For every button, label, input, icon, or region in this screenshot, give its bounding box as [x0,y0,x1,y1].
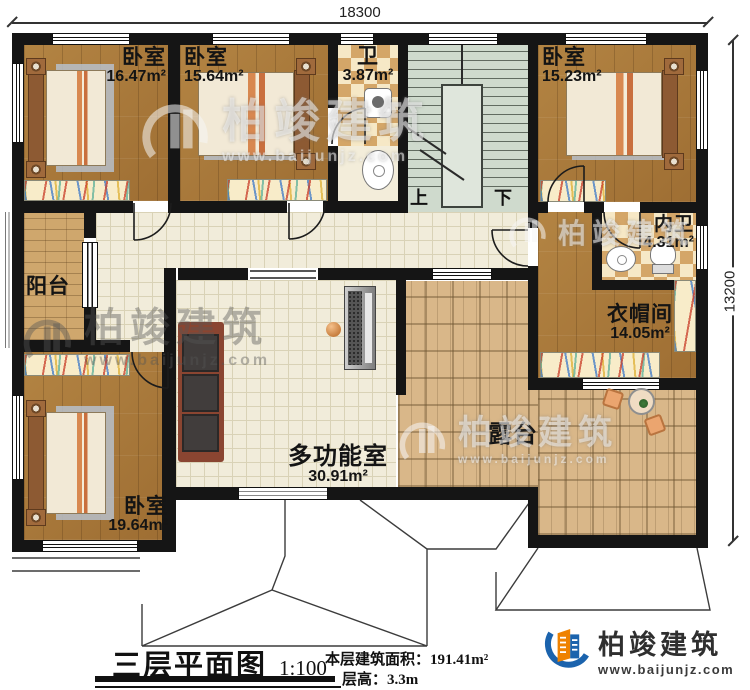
window [696,225,708,270]
wardrobe [24,180,130,201]
wall [538,202,548,213]
stairs-up-label: 上 [410,184,428,210]
terrace-sliding-door[interactable] [432,268,492,280]
wall [12,201,133,213]
room-name: 卧室 [62,47,166,69]
wall [12,540,42,552]
corridor-floor [96,212,528,268]
window [582,378,660,390]
room-label-bedroom-top-middle: 卧室 15.64m² [184,47,294,86]
sofa [178,322,224,462]
floor-height-label: 层高： [342,672,387,688]
title-underline-thick [95,676,335,682]
room-label-bath: 卫 3.87m² [334,46,402,85]
floor-height-value: 3.3m [387,672,418,688]
wall [396,268,406,395]
room-label-bedroom-top-right: 卧室 15.23m² [542,47,652,86]
stairs-down-label: 下 [494,184,512,210]
room-label-bedroom-bottom-left: 卧室 19.64m² [92,496,168,535]
window [52,33,130,45]
room-name: 卫 [334,46,402,68]
brand-name: 柏竣建筑 [598,623,734,662]
room-name: 卧室 [542,47,652,69]
wardrobe [24,354,130,376]
brand-logo-block: 柏竣建筑 www.baijunjz.com [536,620,734,680]
room-area: 19.64m² [92,518,168,535]
title-underline-thin [95,686,341,688]
dimension-height: 13200 [721,268,738,316]
floor-area-line: 本层建筑面积：191.41m² [325,648,488,669]
room-floor-terrace-right [538,390,696,535]
room-label-balcony: 阳台 [26,276,70,298]
wall [318,268,432,280]
wall [323,201,403,213]
corridor-opening-rail [250,270,316,279]
wall [592,212,602,280]
window [696,70,708,150]
wall [84,212,96,238]
wall [178,268,248,280]
dimension-width: 18300 [336,4,384,21]
window [212,33,290,45]
wall [138,540,168,552]
floor-area-label: 本层建筑面积： [325,652,430,668]
sink [362,150,394,190]
window [565,33,647,45]
room-area: 4.31m² [608,235,694,252]
room-area: 16.47m² [62,69,166,86]
floor-plan-page: 上 下 [0,0,750,690]
room-name: 衣帽间 [586,304,694,326]
terrace-table [628,388,655,415]
brand-logo-icon [536,620,590,680]
room-floor-terrace-inner [398,281,528,487]
dimension-line-top [12,22,708,24]
wall [528,266,538,280]
wall [528,535,708,548]
room-area: 15.23m² [542,69,652,86]
decor-ball [326,322,341,337]
room-name: 内卫 [608,215,694,235]
wall [528,33,538,228]
room-area: 14.05m² [586,326,694,343]
room-name: 卧室 [184,47,294,69]
wall [170,201,287,213]
room-name: 阳台 [26,276,70,298]
stair-shaft [441,84,483,208]
wall [12,340,130,352]
window [340,33,374,45]
window [238,487,328,500]
wardrobe [227,179,327,201]
tv-cabinet [344,286,376,370]
room-label-bedroom-top-left: 卧室 16.47m² [62,47,166,86]
wall [328,487,538,500]
room-name: 露台 [488,422,538,447]
wall [528,280,538,390]
room-name: 多功能室 [276,444,400,469]
room-area: 30.91m² [276,469,400,486]
room-label-inner-bath: 内卫 4.31m² [608,215,694,252]
window [42,540,138,552]
room-name: 卧室 [92,496,168,518]
wardrobe [540,180,606,202]
balcony-sliding-door[interactable] [82,242,98,308]
window [428,33,498,45]
wall [640,202,708,213]
room-label-multifunction: 多功能室 30.91m² [276,444,400,486]
wall [168,487,238,500]
wall [492,268,528,280]
toilet [364,88,392,118]
room-area: 3.87m² [334,68,402,85]
floor-area-value: 191.41m² [430,652,488,668]
toilet-tank [652,264,674,274]
window [12,63,24,143]
wardrobe [540,352,660,378]
wall [168,33,180,213]
room-area: 15.64m² [184,69,294,86]
room-label-terrace: 露台 [488,422,538,447]
wall [164,268,176,352]
floor-height-line: 层高：3.3m [342,668,418,689]
room-label-cloakroom: 衣帽间 14.05m² [586,304,694,343]
brand-url: www.baijunjz.com [598,662,734,677]
window [12,395,24,480]
